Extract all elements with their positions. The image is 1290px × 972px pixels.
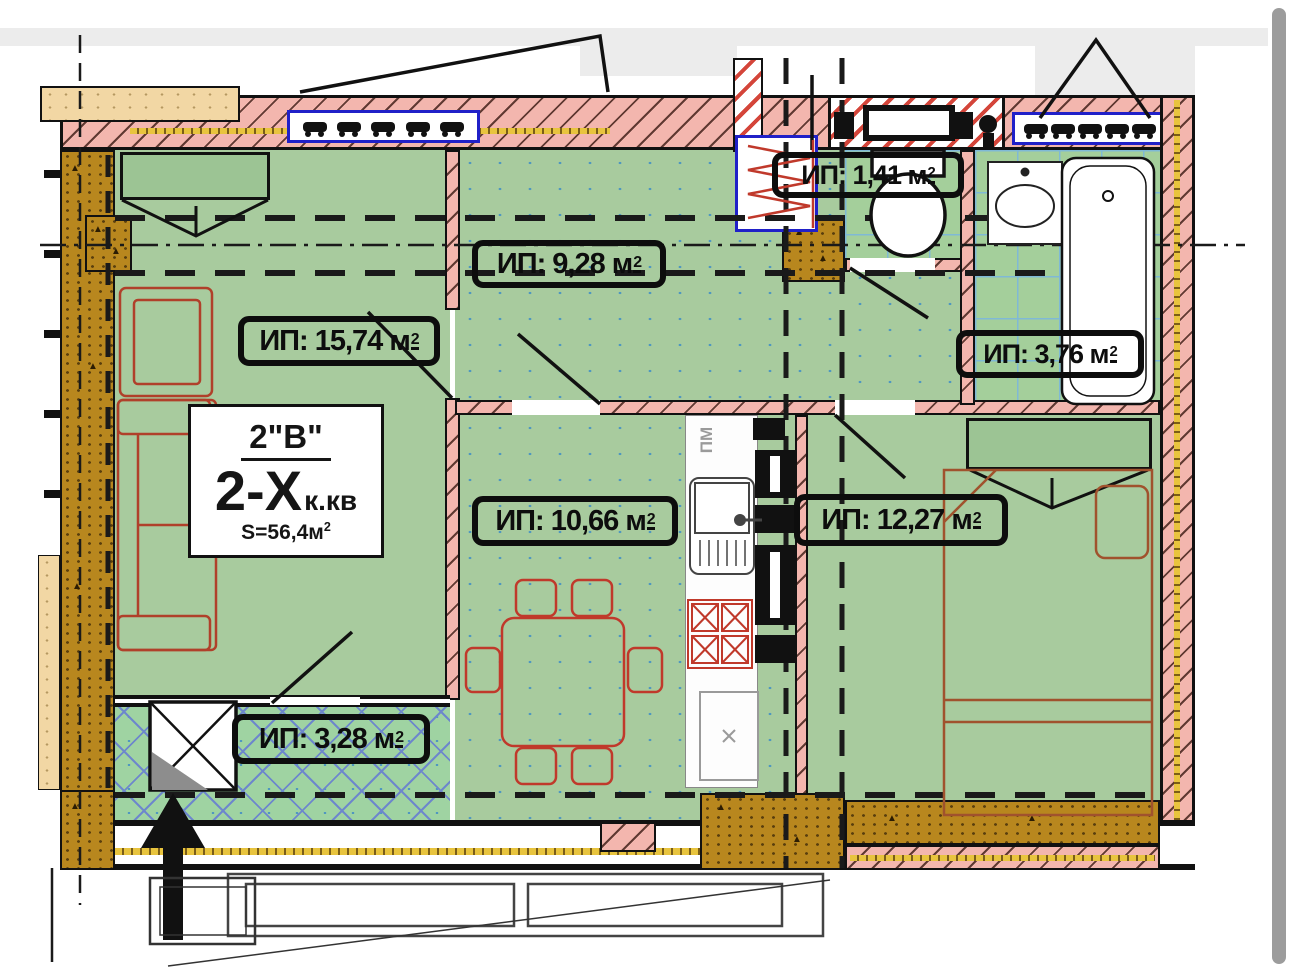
wardrobe-living	[120, 152, 270, 200]
insulation-strip	[1174, 100, 1180, 865]
area-label-sup: 2	[633, 255, 641, 274]
apartment-area-sup: 2	[324, 520, 331, 534]
radiator-icon	[406, 122, 430, 132]
window-living	[287, 110, 480, 143]
area-label-text: ИП: 15,74 м	[259, 325, 409, 358]
area-label-text: ИП: 12,27 м	[821, 504, 971, 537]
area-label-wc: ИП: 1,41 м2	[772, 152, 964, 198]
area-label-text: ИП: 1,41 м	[801, 160, 926, 191]
room-hallway-ext	[845, 265, 965, 405]
apartment-type-code: 2"В"	[241, 418, 330, 461]
stairwell-wall	[828, 95, 1005, 150]
door-opening-kitchen	[512, 400, 600, 415]
floor-plan-page: ▲▲▲▲ ▲▲ ▲▲ ▲ ▲▲ ▲▲ ПМ	[0, 0, 1290, 972]
area-label-sup: 2	[395, 730, 403, 749]
radiator-icon	[1105, 124, 1129, 134]
area-label-loggia: ИП: 3,28 м2	[232, 714, 430, 764]
radiator-icon	[337, 122, 361, 132]
radiator-icon	[303, 122, 327, 132]
wall-living-hall-upper	[445, 150, 460, 310]
apartment-rooms-count: 2-Х	[215, 463, 302, 519]
area-label-bathroom: ИП: 3,76 м2	[956, 330, 1144, 378]
radiator-icon	[1132, 124, 1156, 134]
apartment-card: 2"В" 2-Х к.кв S=56,4м2	[188, 404, 384, 558]
window-bathroom	[1012, 112, 1168, 145]
apartment-area-value: S=56,4м	[241, 521, 324, 544]
area-label-sup: 2	[973, 511, 981, 530]
wall-living-kitchen	[445, 398, 460, 700]
area-label-sup: 2	[1110, 345, 1117, 363]
dishwasher-label: ПМ	[697, 427, 717, 453]
apartment-rooms-suffix: к.кв	[304, 485, 357, 517]
column: ▲▲	[700, 793, 845, 870]
area-label-hallway: ИП: 9,28 м2	[472, 240, 666, 288]
area-label-text: ИП: 9,28 м	[497, 248, 632, 281]
area-label-text: ИП: 3,28 м	[259, 723, 394, 756]
door-opening-loggia	[270, 697, 360, 705]
adjacent-apartment-block	[40, 86, 240, 122]
apartment-area: S=56,4м2	[241, 520, 331, 545]
kitchen-counter	[685, 415, 758, 788]
insulation-strip	[850, 855, 1155, 861]
wall-pier	[600, 822, 656, 852]
column: ▲▲	[85, 215, 132, 272]
left-wall-marks	[44, 170, 60, 498]
monolith-band: ▲▲	[845, 800, 1160, 845]
background-band	[580, 46, 737, 76]
area-label-text: ИП: 3,76 м	[983, 339, 1108, 370]
radiator-icon	[440, 122, 464, 132]
room-bedroom	[808, 415, 1160, 820]
column: ▲	[60, 790, 115, 870]
area-label-sup: 2	[928, 166, 935, 184]
area-label-kitchen: ИП: 10,66 м2	[472, 496, 678, 546]
radiator-icon	[1078, 124, 1102, 134]
area-label-sup: 2	[411, 332, 419, 351]
balcony-outline	[150, 874, 830, 966]
door-opening-wc	[850, 258, 935, 272]
apartment-rooms: 2-Х к.кв	[215, 463, 357, 519]
scrollbar-thumb[interactable]	[1272, 8, 1286, 964]
radiator-icon	[1051, 124, 1075, 134]
background-band	[0, 28, 1268, 46]
area-label-bedroom: ИП: 12,27 м2	[794, 494, 1008, 546]
area-label-sup: 2	[647, 512, 655, 531]
radiator-icon	[371, 122, 395, 132]
background-band	[1035, 46, 1195, 95]
wall-kitchen-bedroom	[795, 415, 808, 820]
adjacent-apartment-strip	[38, 555, 60, 790]
radiator-icon	[1024, 124, 1048, 134]
area-label-text: ИП: 10,66 м	[495, 505, 645, 538]
wardrobe-bedroom	[966, 418, 1152, 470]
area-label-living: ИП: 15,74 м2	[238, 316, 440, 366]
door-opening-bedroom	[835, 400, 915, 415]
